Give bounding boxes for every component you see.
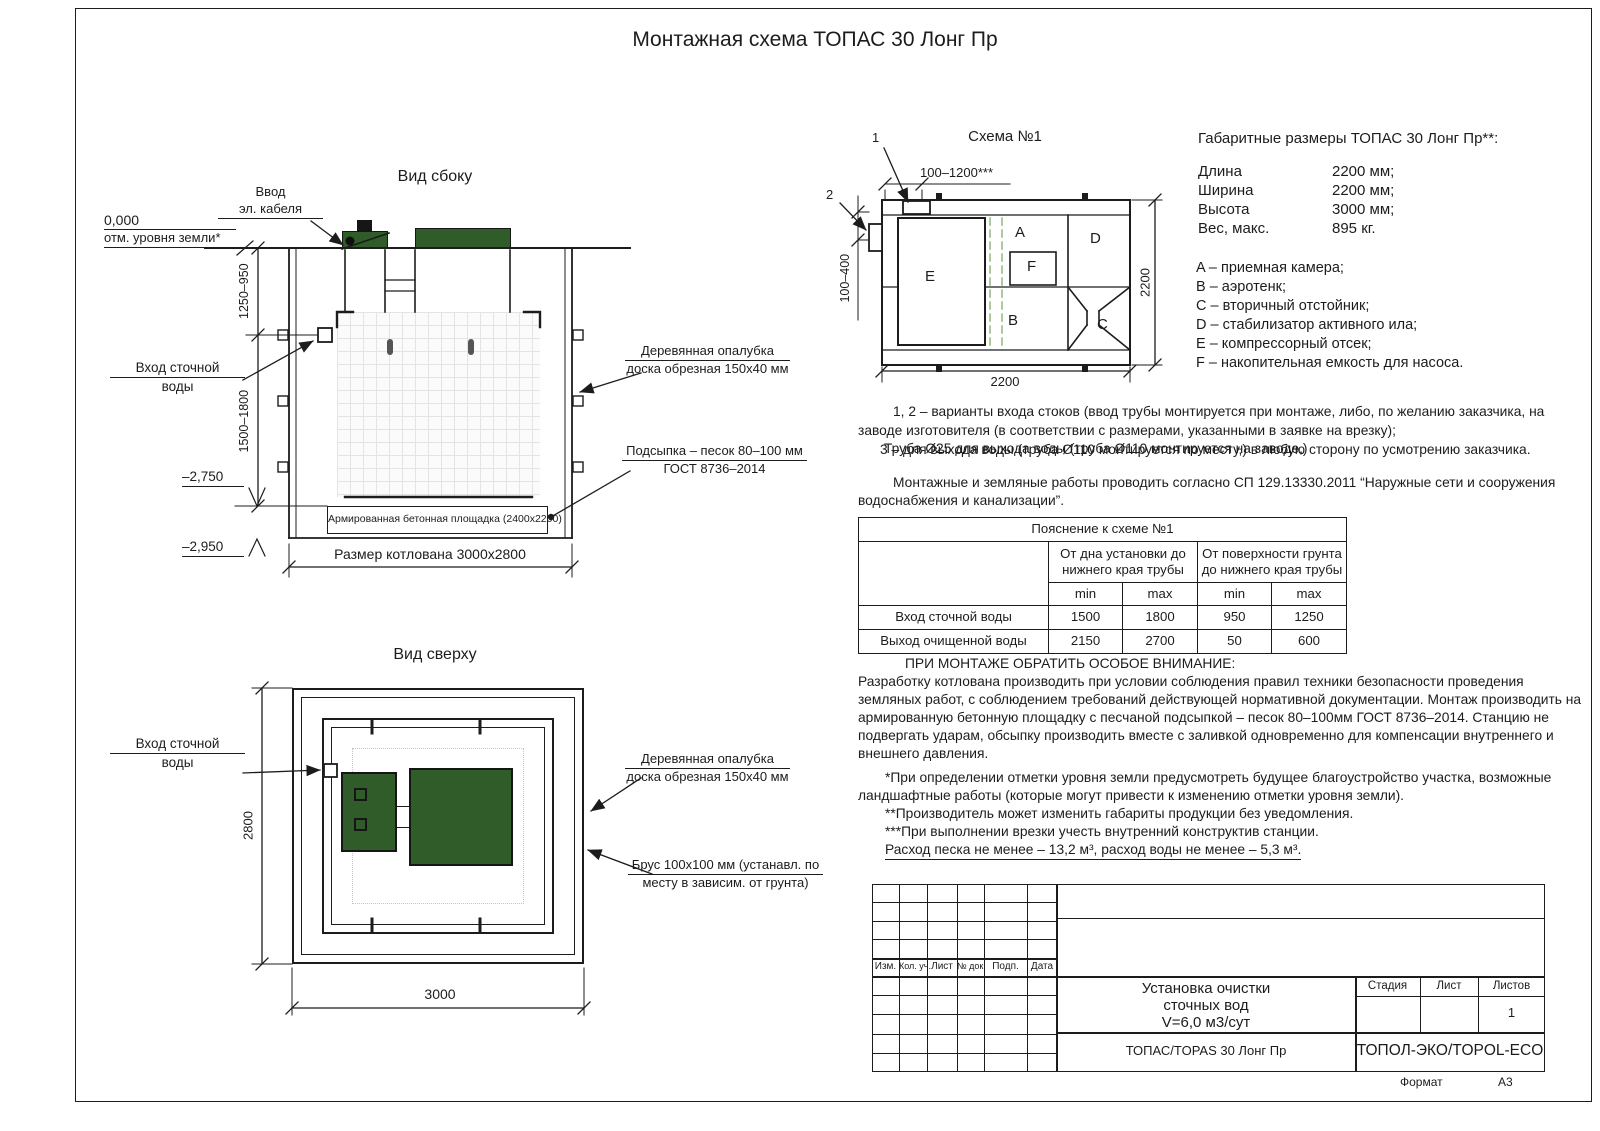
table-cell: 950 <box>1198 606 1272 630</box>
overlapped-note-b: 3 – для выхода воды (труба Ø110 монтируе… <box>880 442 1531 458</box>
table-row: Выход очищенной воды 2150 2700 50 600 <box>859 630 1347 654</box>
dim-upper-side: 1250–950 <box>237 251 251 331</box>
table-cell: 1500 <box>1049 606 1123 630</box>
attention-heading: ПРИ МОНТАЖЕ ОБРАТИТЬ ОСОБОЕ ВНИМАНИЕ: <box>905 656 1235 672</box>
schema-dim-bottom: 2200 <box>960 375 1050 390</box>
legend-item-4: E – компрессорный отсек; <box>1196 336 1372 353</box>
legend-item-0: A – приемная камера; <box>1196 260 1344 277</box>
stamp-header-ndok: № док. <box>957 961 984 971</box>
dimensions-heading: Габаритные размеры ТОПАС 30 Лонг Пр**: <box>1198 130 1498 147</box>
compartment-e: E <box>925 268 935 285</box>
table-title: Пояснение к схеме №1 <box>859 518 1347 542</box>
table-cell: 50 <box>1198 630 1272 654</box>
bedding-label-2: ГОСТ 8736–2014 <box>622 462 807 477</box>
stamp-header-koluch: Кол. уч. <box>899 961 927 971</box>
dim-row-label-3: Вес, макс. <box>1198 220 1269 237</box>
stage-label: Стадия <box>1355 980 1420 993</box>
table-max-1: max <box>1123 583 1198 606</box>
dim-row-value-0: 2200 мм; <box>1332 163 1394 180</box>
explanation-table: Пояснение к схеме №1 От дна установки до… <box>858 517 1347 654</box>
legend-item-2: C – вторичный отстойник; <box>1196 298 1369 315</box>
schema-dim-left: 100–400 <box>838 238 852 318</box>
table-min-1: min <box>1049 583 1123 606</box>
format-value: А3 <box>1498 1076 1513 1090</box>
works-note-line-1: Монтажные и земляные работы проводить со… <box>893 475 1555 491</box>
footnote-2: **Производитель может изменить габариты … <box>885 806 1353 822</box>
works-note-line-2: водоснабжения и канализации”. <box>858 493 1064 509</box>
table-cell: 2700 <box>1123 630 1198 654</box>
zero-mark-label: 0,000 <box>104 212 236 230</box>
sand-consumption-note: Расход песка не менее – 13,2 м³, расход … <box>885 842 1301 860</box>
beam-label-2: месту в зависим. от грунта) <box>628 876 823 891</box>
schema-dim-right: 2200 <box>1139 242 1154 322</box>
footnote-3: ***При выполнении врезки учесть внутренн… <box>885 824 1319 840</box>
dim-lower-side: 1500–1800 <box>237 376 251 466</box>
doc-title-line-1: Установка очистки <box>1057 980 1355 997</box>
footnote-1-line-2: ландшафтные работы (которые могут привес… <box>858 788 1404 804</box>
elevation-2750: –2,750 <box>182 469 244 487</box>
legend-item-1: B – аэротенк; <box>1196 279 1286 296</box>
sideview-heading: Вид сбоку <box>350 168 520 186</box>
inlet-label-top-2: воды <box>110 755 245 771</box>
drawing-sheet: Монтажная схема ТОПАС 30 Лонг Пр Вид сбо… <box>0 0 1600 1131</box>
dim-2800: 2800 <box>242 785 257 865</box>
dim-row-value-2: 3000 мм; <box>1332 201 1394 218</box>
variants-note-line-1: 1, 2 – варианты входа стоков (ввод трубы… <box>893 404 1544 420</box>
dim-row-value-1: 2200 мм; <box>1332 182 1394 199</box>
schema-callout-2: 2 <box>826 188 833 203</box>
dim-3000: 3000 <box>390 986 490 1002</box>
slab-label: Армированная бетонная площадка (2400х220… <box>328 513 547 525</box>
page-title: Монтажная схема ТОПАС 30 Лонг Пр <box>480 28 1150 52</box>
bedding-label-1: Подсыпка – песок 80–100 мм <box>622 444 807 461</box>
formwork-label-side-1: Деревянная опалубка <box>625 344 790 361</box>
dim-row-label-1: Ширина <box>1198 182 1253 199</box>
stamp-header-podp: Подп. <box>984 961 1027 973</box>
attention-body-line-2: армированную бетонную площадку с песчано… <box>858 710 1549 726</box>
table-row-label: Выход очищенной воды <box>859 630 1049 654</box>
formwork-label-side-2: доска обрезная 150х40 мм <box>615 362 800 377</box>
table-colgroup-2: От поверхности грунта до нижнего края тр… <box>1198 542 1347 583</box>
table-min-2: min <box>1198 583 1272 606</box>
attention-body-line-0: Разработку котлована производить при усл… <box>858 674 1524 690</box>
model-name: ТОПАС/TOPAS 30 Лонг Пр <box>1057 1044 1355 1059</box>
footnote-1-line-1: *При определении отметки уровня земли пр… <box>885 770 1551 786</box>
sheet-label: Лист <box>1420 980 1478 993</box>
compartment-d: D <box>1090 230 1101 247</box>
schema-heading: Схема №1 <box>930 128 1080 145</box>
compartment-c: C <box>1097 316 1108 333</box>
pit-size-label: Размер котлована 3000х2800 <box>310 546 550 562</box>
dim-row-label-2: Высота <box>1198 201 1250 218</box>
inlet-label-side-2: воды <box>110 379 245 395</box>
inlet-label-side-1: Вход сточной <box>110 360 245 378</box>
stamp-header-list: Лист <box>927 961 957 973</box>
table-corner-cell <box>859 542 1049 606</box>
compartment-a: A <box>1015 224 1025 241</box>
compartment-b: B <box>1008 312 1018 329</box>
cable-entry-label-1: Ввод <box>218 185 323 200</box>
variants-note-line-2: заводе изготовителя (в соответствии с ра… <box>858 423 1396 439</box>
dim-row-label-0: Длина <box>1198 163 1242 180</box>
compartment-f: F <box>1027 258 1036 275</box>
elevation-2950: –2,950 <box>182 539 244 557</box>
doc-title-line-3: V=6,0 м3/сут <box>1057 1014 1355 1031</box>
cable-entry-label-2: эл. кабеля <box>218 202 323 219</box>
dim-row-value-3: 895 кг. <box>1332 220 1376 237</box>
inlet-label-top-1: Вход сточной <box>110 736 245 754</box>
sheets-value: 1 <box>1478 1006 1545 1021</box>
table-row: Вход сточной воды 1500 1800 950 1250 <box>859 606 1347 630</box>
schema-callout-1: 1 <box>872 131 879 146</box>
sheets-label: Листов <box>1478 980 1545 993</box>
stamp-header-data: Дата <box>1027 961 1057 973</box>
topview-heading: Вид сверху <box>350 646 520 664</box>
schema-dim-top: 100–1200*** <box>920 166 993 181</box>
doc-title-line-2: сточных вод <box>1057 997 1355 1014</box>
attention-body-line-4: внешнего давления. <box>858 746 988 762</box>
table-colgroup-1: От дна установки до нижнего края трубы <box>1049 542 1198 583</box>
attention-body-line-1: земляных работ, с соблюдением требований… <box>858 692 1581 708</box>
table-cell: 600 <box>1272 630 1347 654</box>
table-cell: 1800 <box>1123 606 1198 630</box>
format-label: Формат <box>1400 1076 1443 1090</box>
table-max-2: max <box>1272 583 1347 606</box>
table-row-label: Вход сточной воды <box>859 606 1049 630</box>
stamp-header-izm: Изм. <box>872 961 899 973</box>
beam-label-1: Брус 100х100 мм (устанавл. по <box>628 858 823 875</box>
ground-level-label: отм. уровня земли* <box>104 231 236 248</box>
company-name: ТОПОЛ-ЭКО/TOPOL-ECO <box>1355 1042 1545 1060</box>
formwork-label-top-2: доска обрезная 150х40 мм <box>615 770 800 785</box>
formwork-label-top-1: Деревянная опалубка <box>625 752 790 769</box>
table-cell: 2150 <box>1049 630 1123 654</box>
table-cell: 1250 <box>1272 606 1347 630</box>
legend-item-5: F – накопительная емкость для насоса. <box>1196 355 1463 372</box>
legend-item-3: D – стабилизатор активного ила; <box>1196 317 1417 334</box>
attention-body-line-3: подвергать ударам, обсыпку производить в… <box>858 728 1554 744</box>
